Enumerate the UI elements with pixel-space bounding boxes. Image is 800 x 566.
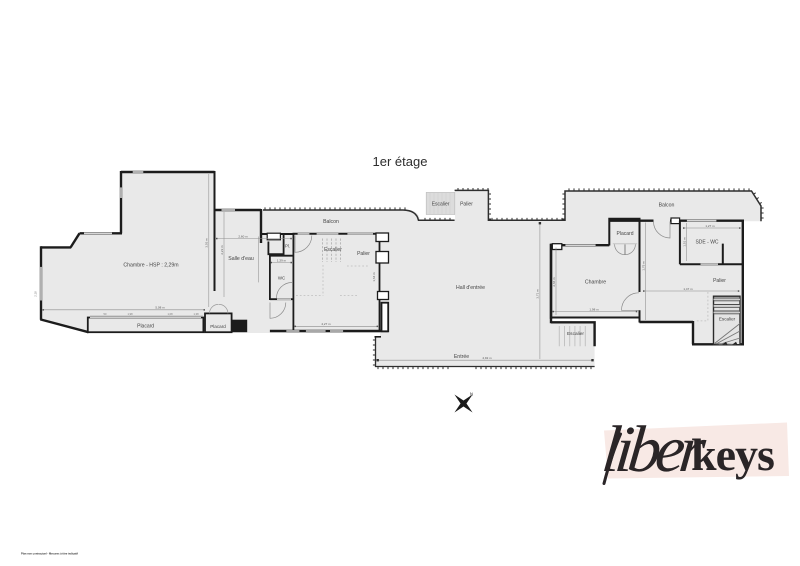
svg-text:1,75 m: 1,75 m xyxy=(642,261,646,271)
svg-text:1,38: 1,38 xyxy=(193,312,199,316)
svg-text:Chambre - HSP : 2,29m: Chambre - HSP : 2,29m xyxy=(123,263,178,269)
svg-text:Plan non contractuel - Mesures: Plan non contractuel - Mesures à titre i… xyxy=(21,552,78,556)
svg-text:Escalier: Escalier xyxy=(324,247,342,253)
svg-text:4,27 m: 4,27 m xyxy=(321,322,331,326)
svg-text:Palier: Palier xyxy=(357,251,370,257)
svg-text:1,47 m: 1,47 m xyxy=(683,287,693,291)
svg-text:4,92 m: 4,92 m xyxy=(482,356,492,360)
svg-text:1,27 m: 1,27 m xyxy=(705,224,715,228)
svg-text:2,60 m: 2,60 m xyxy=(238,234,248,238)
svg-text:1,98 m: 1,98 m xyxy=(589,307,599,311)
svg-text:Escalier: Escalier xyxy=(432,201,450,207)
svg-text:2,18: 2,18 xyxy=(34,291,38,297)
svg-text:Escalier: Escalier xyxy=(719,317,736,322)
svg-text:1,08: 1,08 xyxy=(167,312,173,316)
svg-text:Escalier: Escalier xyxy=(567,331,584,337)
svg-text:2,23 m: 2,23 m xyxy=(220,245,224,255)
svg-text:Placard: Placard xyxy=(137,323,154,329)
svg-text:SDE - WC: SDE - WC xyxy=(695,240,718,246)
svg-text:Salle d'eau: Salle d'eau xyxy=(228,256,254,262)
svg-text:Hall d'entrée: Hall d'entrée xyxy=(456,285,485,291)
svg-text:Palier: Palier xyxy=(460,201,473,207)
svg-text:5,08 m: 5,08 m xyxy=(155,306,165,310)
svg-text:Palier: Palier xyxy=(713,278,726,284)
svg-text:Entrée: Entrée xyxy=(454,354,469,360)
svg-text:3,71 m: 3,71 m xyxy=(536,289,540,299)
svg-text:1,98: 1,98 xyxy=(127,312,133,316)
svg-text:keys: keys xyxy=(691,429,774,480)
svg-text:Pl.: Pl. xyxy=(285,243,290,248)
svg-text:3,03 m: 3,03 m xyxy=(205,238,209,248)
svg-text:Placard: Placard xyxy=(210,324,226,329)
svg-text:Balcon: Balcon xyxy=(323,219,339,225)
svg-text:1,51 m: 1,51 m xyxy=(683,237,687,247)
svg-text:N: N xyxy=(470,392,473,397)
svg-text:Chambre: Chambre xyxy=(585,279,606,285)
svg-text:Placard: Placard xyxy=(617,231,634,237)
svg-text:1,39 m: 1,39 m xyxy=(277,258,287,262)
svg-text:2,66 m: 2,66 m xyxy=(552,277,556,287)
svg-text:1er étage: 1er étage xyxy=(373,154,428,169)
svg-text:Balcon: Balcon xyxy=(659,203,675,209)
svg-text:WC: WC xyxy=(278,276,285,281)
svg-text:1,64 m: 1,64 m xyxy=(372,272,376,282)
